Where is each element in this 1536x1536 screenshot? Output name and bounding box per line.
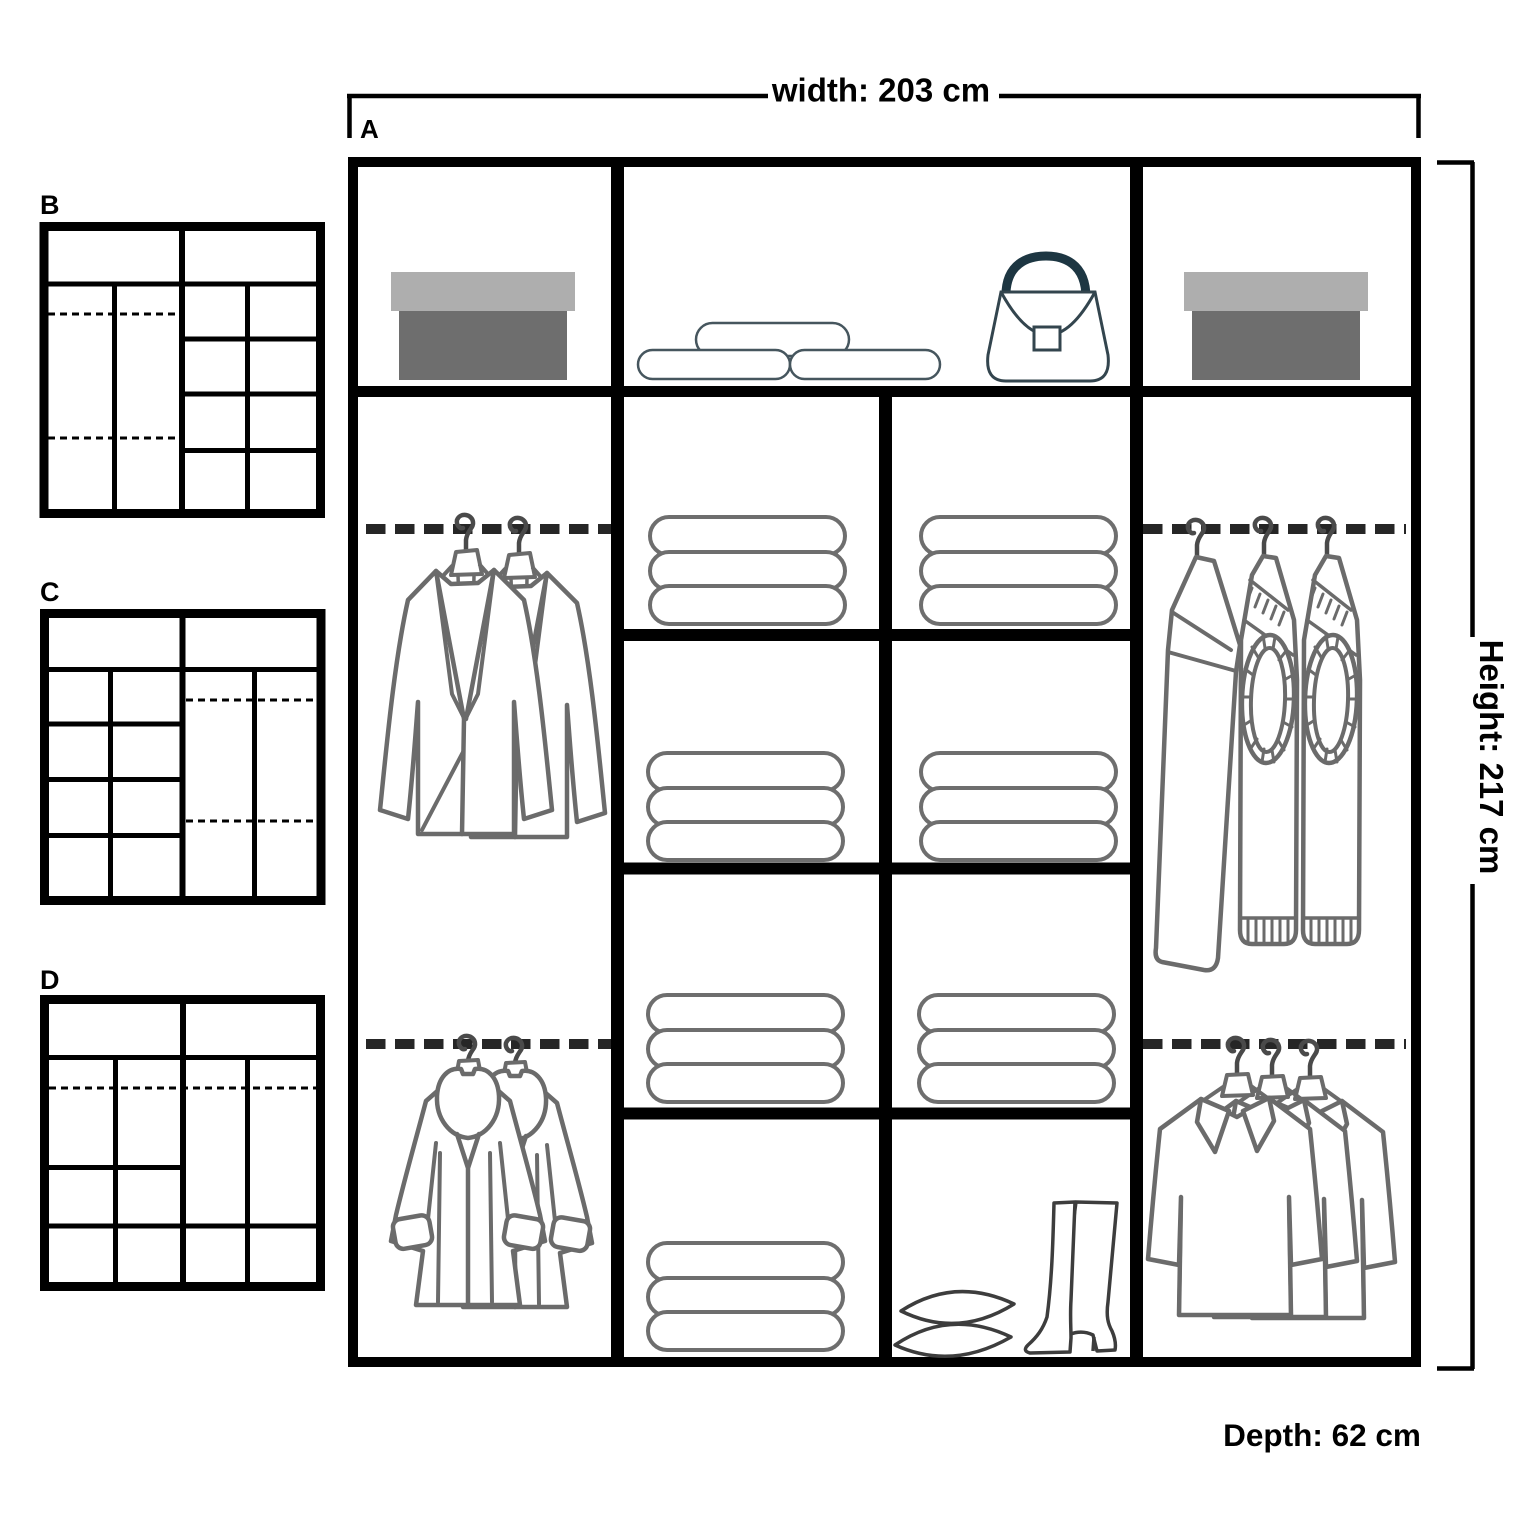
svg-text:C: C (40, 577, 60, 607)
svg-text:A: A (360, 114, 379, 144)
svg-text:Depth: 62 cm: Depth: 62 cm (1223, 1417, 1421, 1453)
svg-text:Height: 217 cm: Height: 217 cm (1473, 640, 1510, 875)
svg-text:width: 203 cm: width: 203 cm (771, 72, 990, 109)
svg-text:B: B (40, 190, 60, 220)
svg-text:D: D (40, 965, 60, 995)
